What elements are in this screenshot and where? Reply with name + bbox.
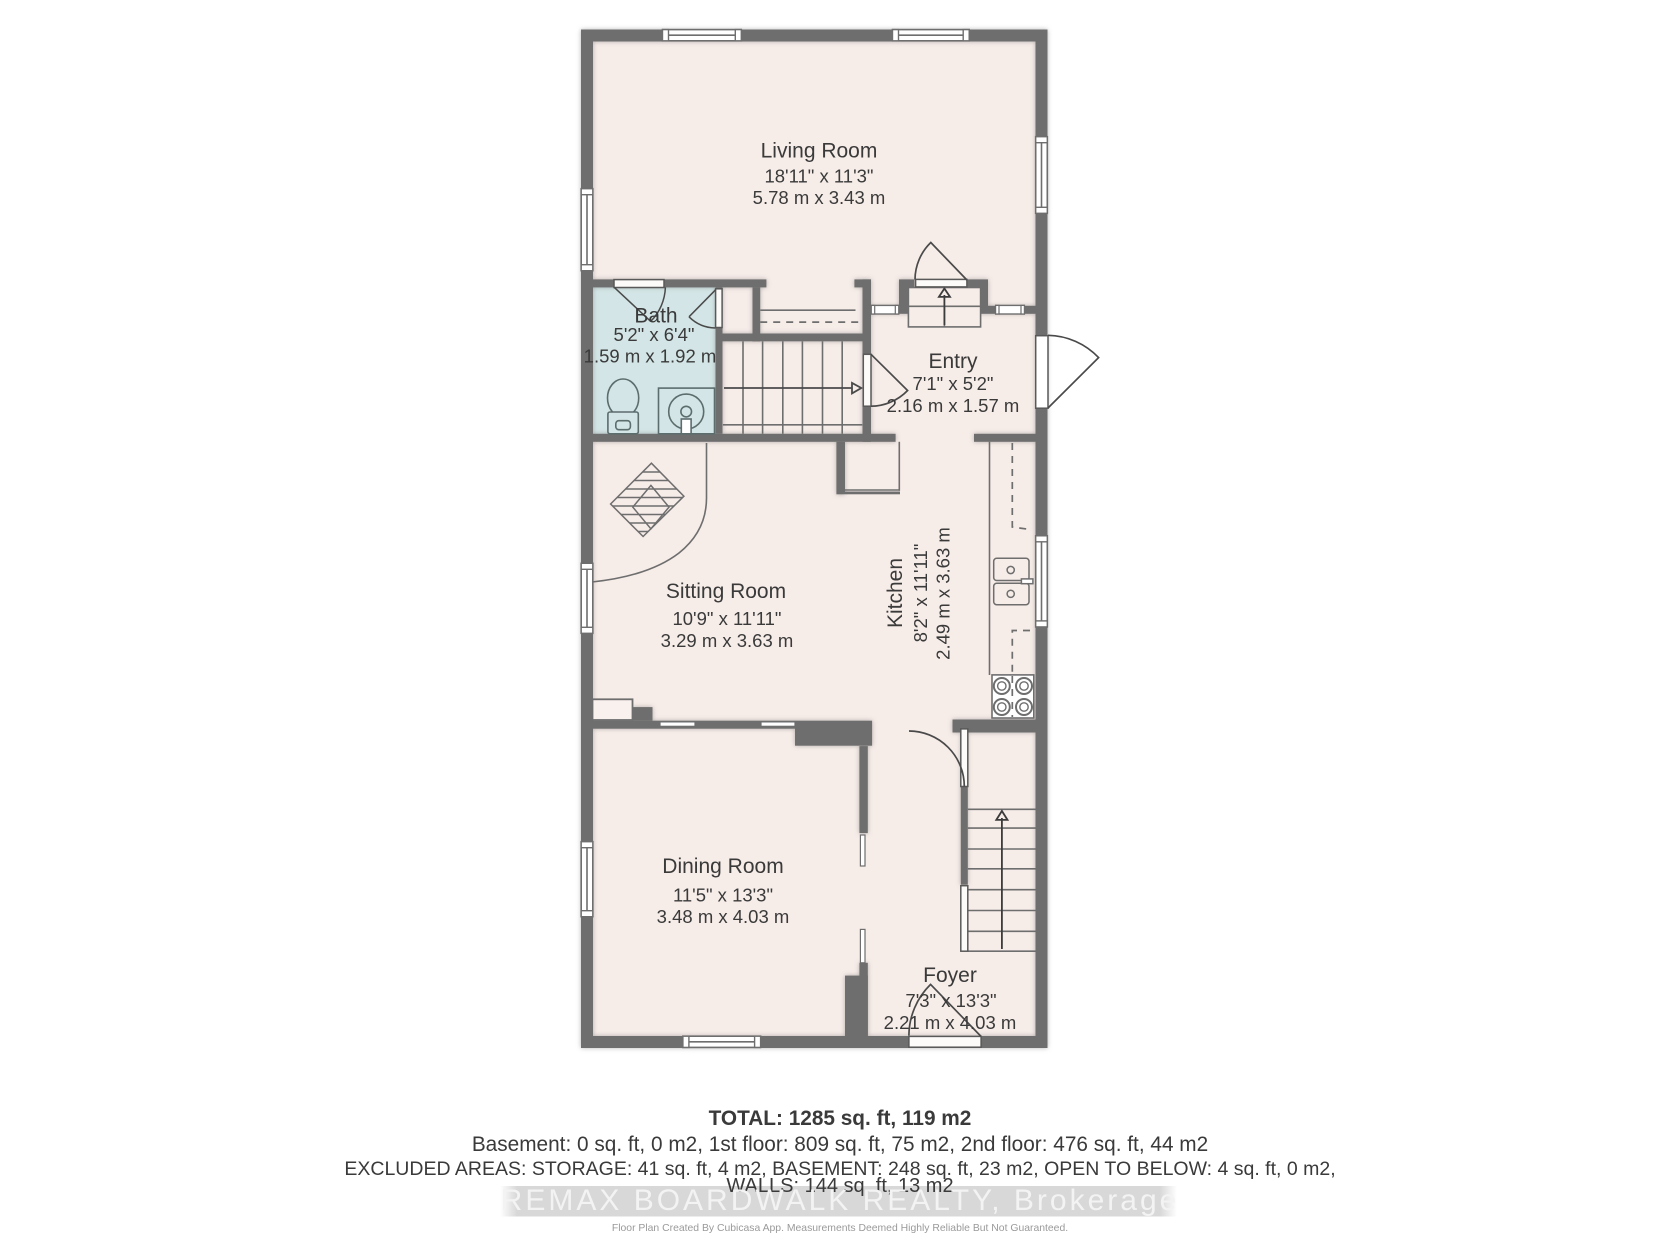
svg-text:REMAX BOARDWALK REALTY, Broker: REMAX BOARDWALK REALTY, Brokerage	[501, 1184, 1180, 1217]
svg-text:Dining Room: Dining Room	[662, 855, 783, 878]
svg-text:5.78 m x 3.43 m: 5.78 m x 3.43 m	[753, 187, 886, 208]
svg-text:2.21 m x 4.03 m: 2.21 m x 4.03 m	[884, 1012, 1017, 1033]
svg-text:18'11" x 11'3": 18'11" x 11'3"	[764, 166, 873, 187]
svg-text:Sitting Room: Sitting Room	[666, 580, 786, 603]
svg-text:Foyer: Foyer	[923, 964, 977, 987]
svg-text:Living Room: Living Room	[761, 140, 878, 163]
svg-text:TOTAL: 1285 sq. ft, 119 m2: TOTAL: 1285 sq. ft, 119 m2	[709, 1107, 972, 1130]
svg-text:3.29 m x 3.63 m: 3.29 m x 3.63 m	[661, 630, 794, 651]
svg-text:11'5" x 13'3": 11'5" x 13'3"	[673, 885, 773, 906]
svg-text:10'9" x 11'11": 10'9" x 11'11"	[672, 608, 781, 629]
svg-text:2.49 m x 3.63 m: 2.49 m x 3.63 m	[933, 527, 954, 660]
svg-text:Basement: 0 sq. ft, 0 m2, 1st: Basement: 0 sq. ft, 0 m2, 1st floor: 809…	[472, 1133, 1208, 1156]
svg-text:3.48 m x 4.03 m: 3.48 m x 4.03 m	[657, 906, 790, 927]
svg-text:1.59 m x 1.92 m: 1.59 m x 1.92 m	[584, 346, 717, 367]
svg-text:7'1" x 5'2": 7'1" x 5'2"	[913, 373, 994, 394]
svg-text:5'2" x 6'4": 5'2" x 6'4"	[614, 324, 695, 345]
svg-text:Kitchen: Kitchen	[884, 558, 907, 628]
svg-text:Floor Plan Created By Cubicasa: Floor Plan Created By Cubicasa App. Meas…	[612, 1223, 1068, 1234]
svg-text:Entry: Entry	[928, 350, 978, 373]
svg-text:8'2" x 11'11": 8'2" x 11'11"	[910, 544, 931, 643]
svg-text:2.16 m x 1.57 m: 2.16 m x 1.57 m	[887, 395, 1020, 416]
svg-text:7'3" x 13'3": 7'3" x 13'3"	[905, 990, 996, 1011]
